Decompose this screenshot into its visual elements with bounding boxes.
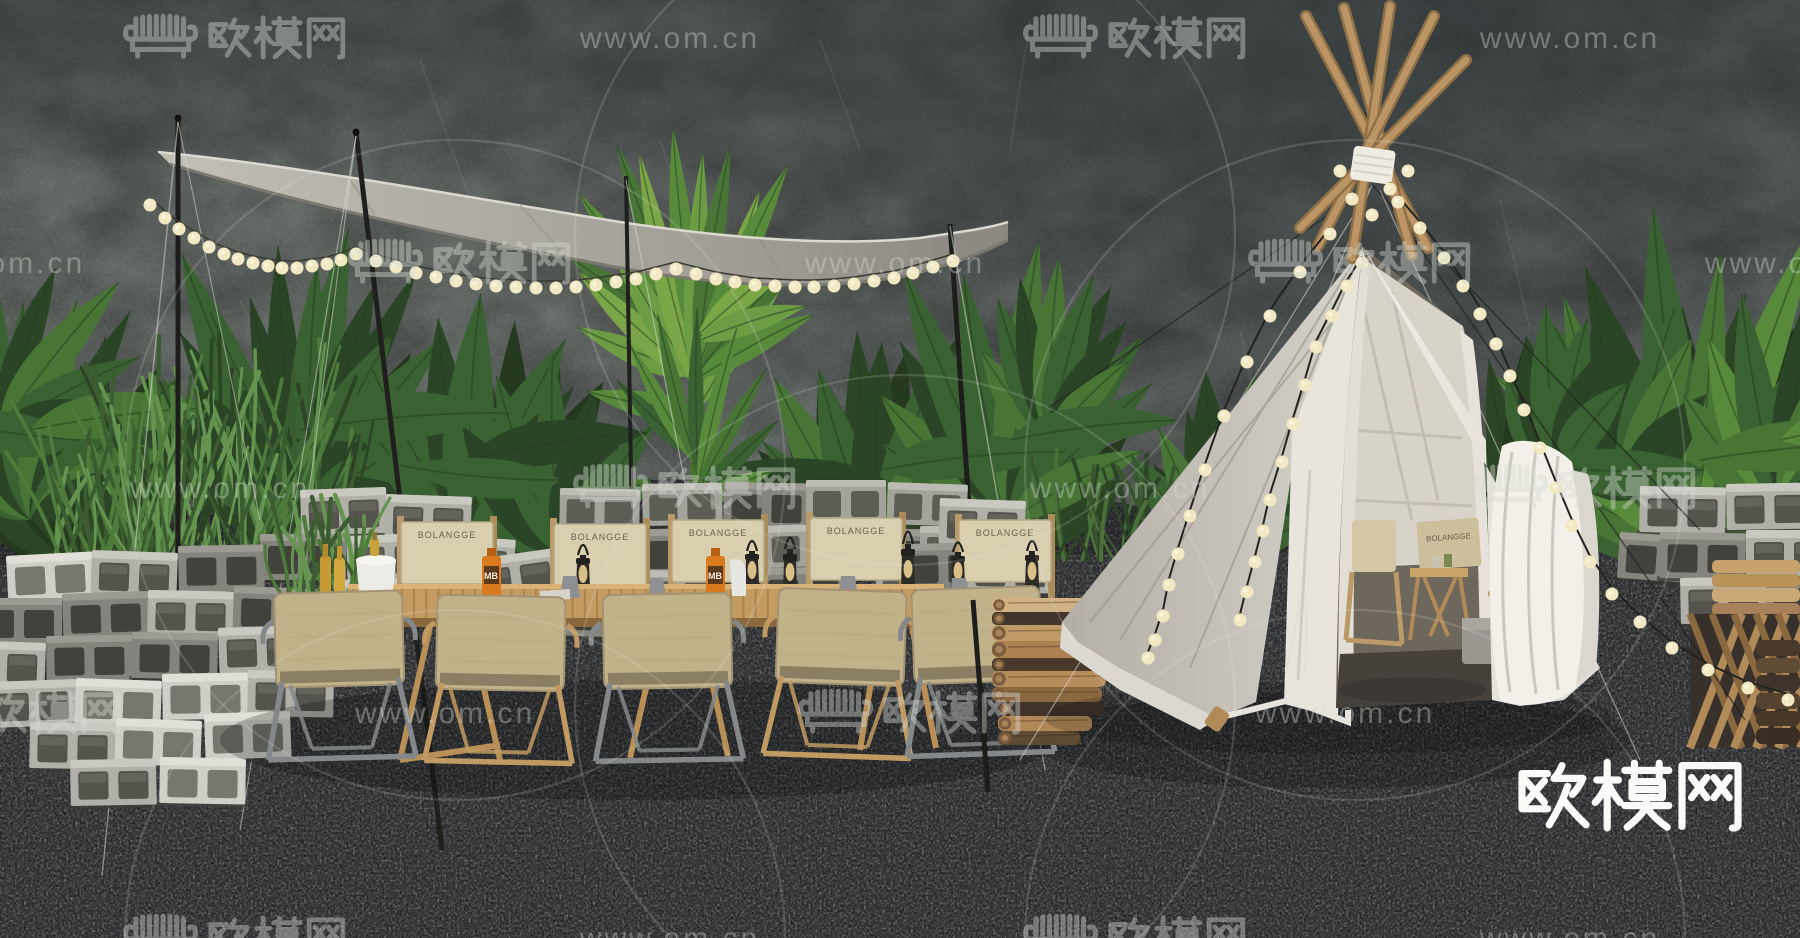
svg-text:www.om.cn: www.om.cn bbox=[804, 247, 985, 280]
svg-text:www.om.cn: www.om.cn bbox=[0, 247, 85, 280]
svg-text:BOLANGGE: BOLANGGE bbox=[689, 528, 748, 538]
svg-text:www.om.cn: www.om.cn bbox=[129, 472, 310, 505]
svg-text:www.om.cn: www.om.cn bbox=[579, 22, 760, 55]
svg-text:www.om.cn: www.om.cn bbox=[1479, 22, 1660, 55]
svg-text:BOLANGGE: BOLANGGE bbox=[827, 526, 886, 536]
svg-text:MB: MB bbox=[708, 571, 722, 581]
svg-text:www.om.cn: www.om.cn bbox=[579, 922, 760, 938]
svg-text:MB: MB bbox=[484, 571, 498, 581]
svg-text:BOLANGGE: BOLANGGE bbox=[418, 530, 477, 540]
svg-text:www.om.cn: www.om.cn bbox=[1254, 697, 1435, 730]
svg-text:www.om.cn: www.om.cn bbox=[1479, 922, 1660, 938]
svg-text:BOLANGGE: BOLANGGE bbox=[976, 528, 1035, 538]
svg-text:www.om.cn: www.om.cn bbox=[1704, 247, 1800, 280]
svg-text:www.om.cn: www.om.cn bbox=[1029, 472, 1210, 505]
svg-text:www.om.cn: www.om.cn bbox=[354, 697, 535, 730]
